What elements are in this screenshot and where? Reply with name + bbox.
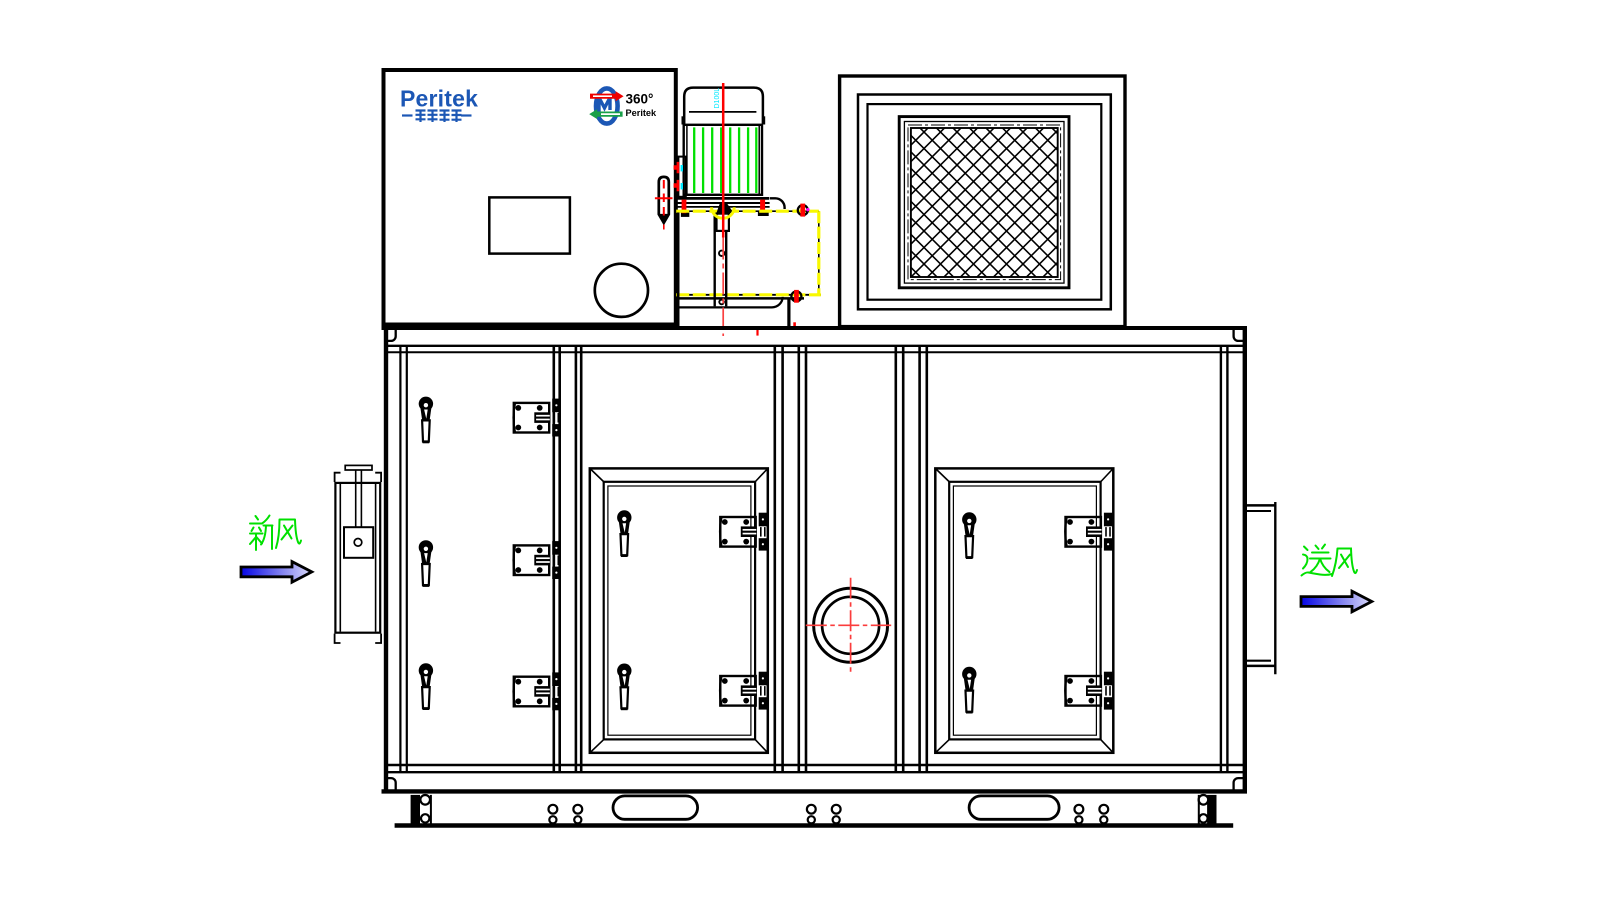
- svg-text:Peritek: Peritek: [626, 108, 658, 118]
- svg-text:D100L: D100L: [714, 88, 721, 109]
- svg-text:360°: 360°: [626, 92, 654, 107]
- svg-text:Peritek: Peritek: [400, 86, 478, 112]
